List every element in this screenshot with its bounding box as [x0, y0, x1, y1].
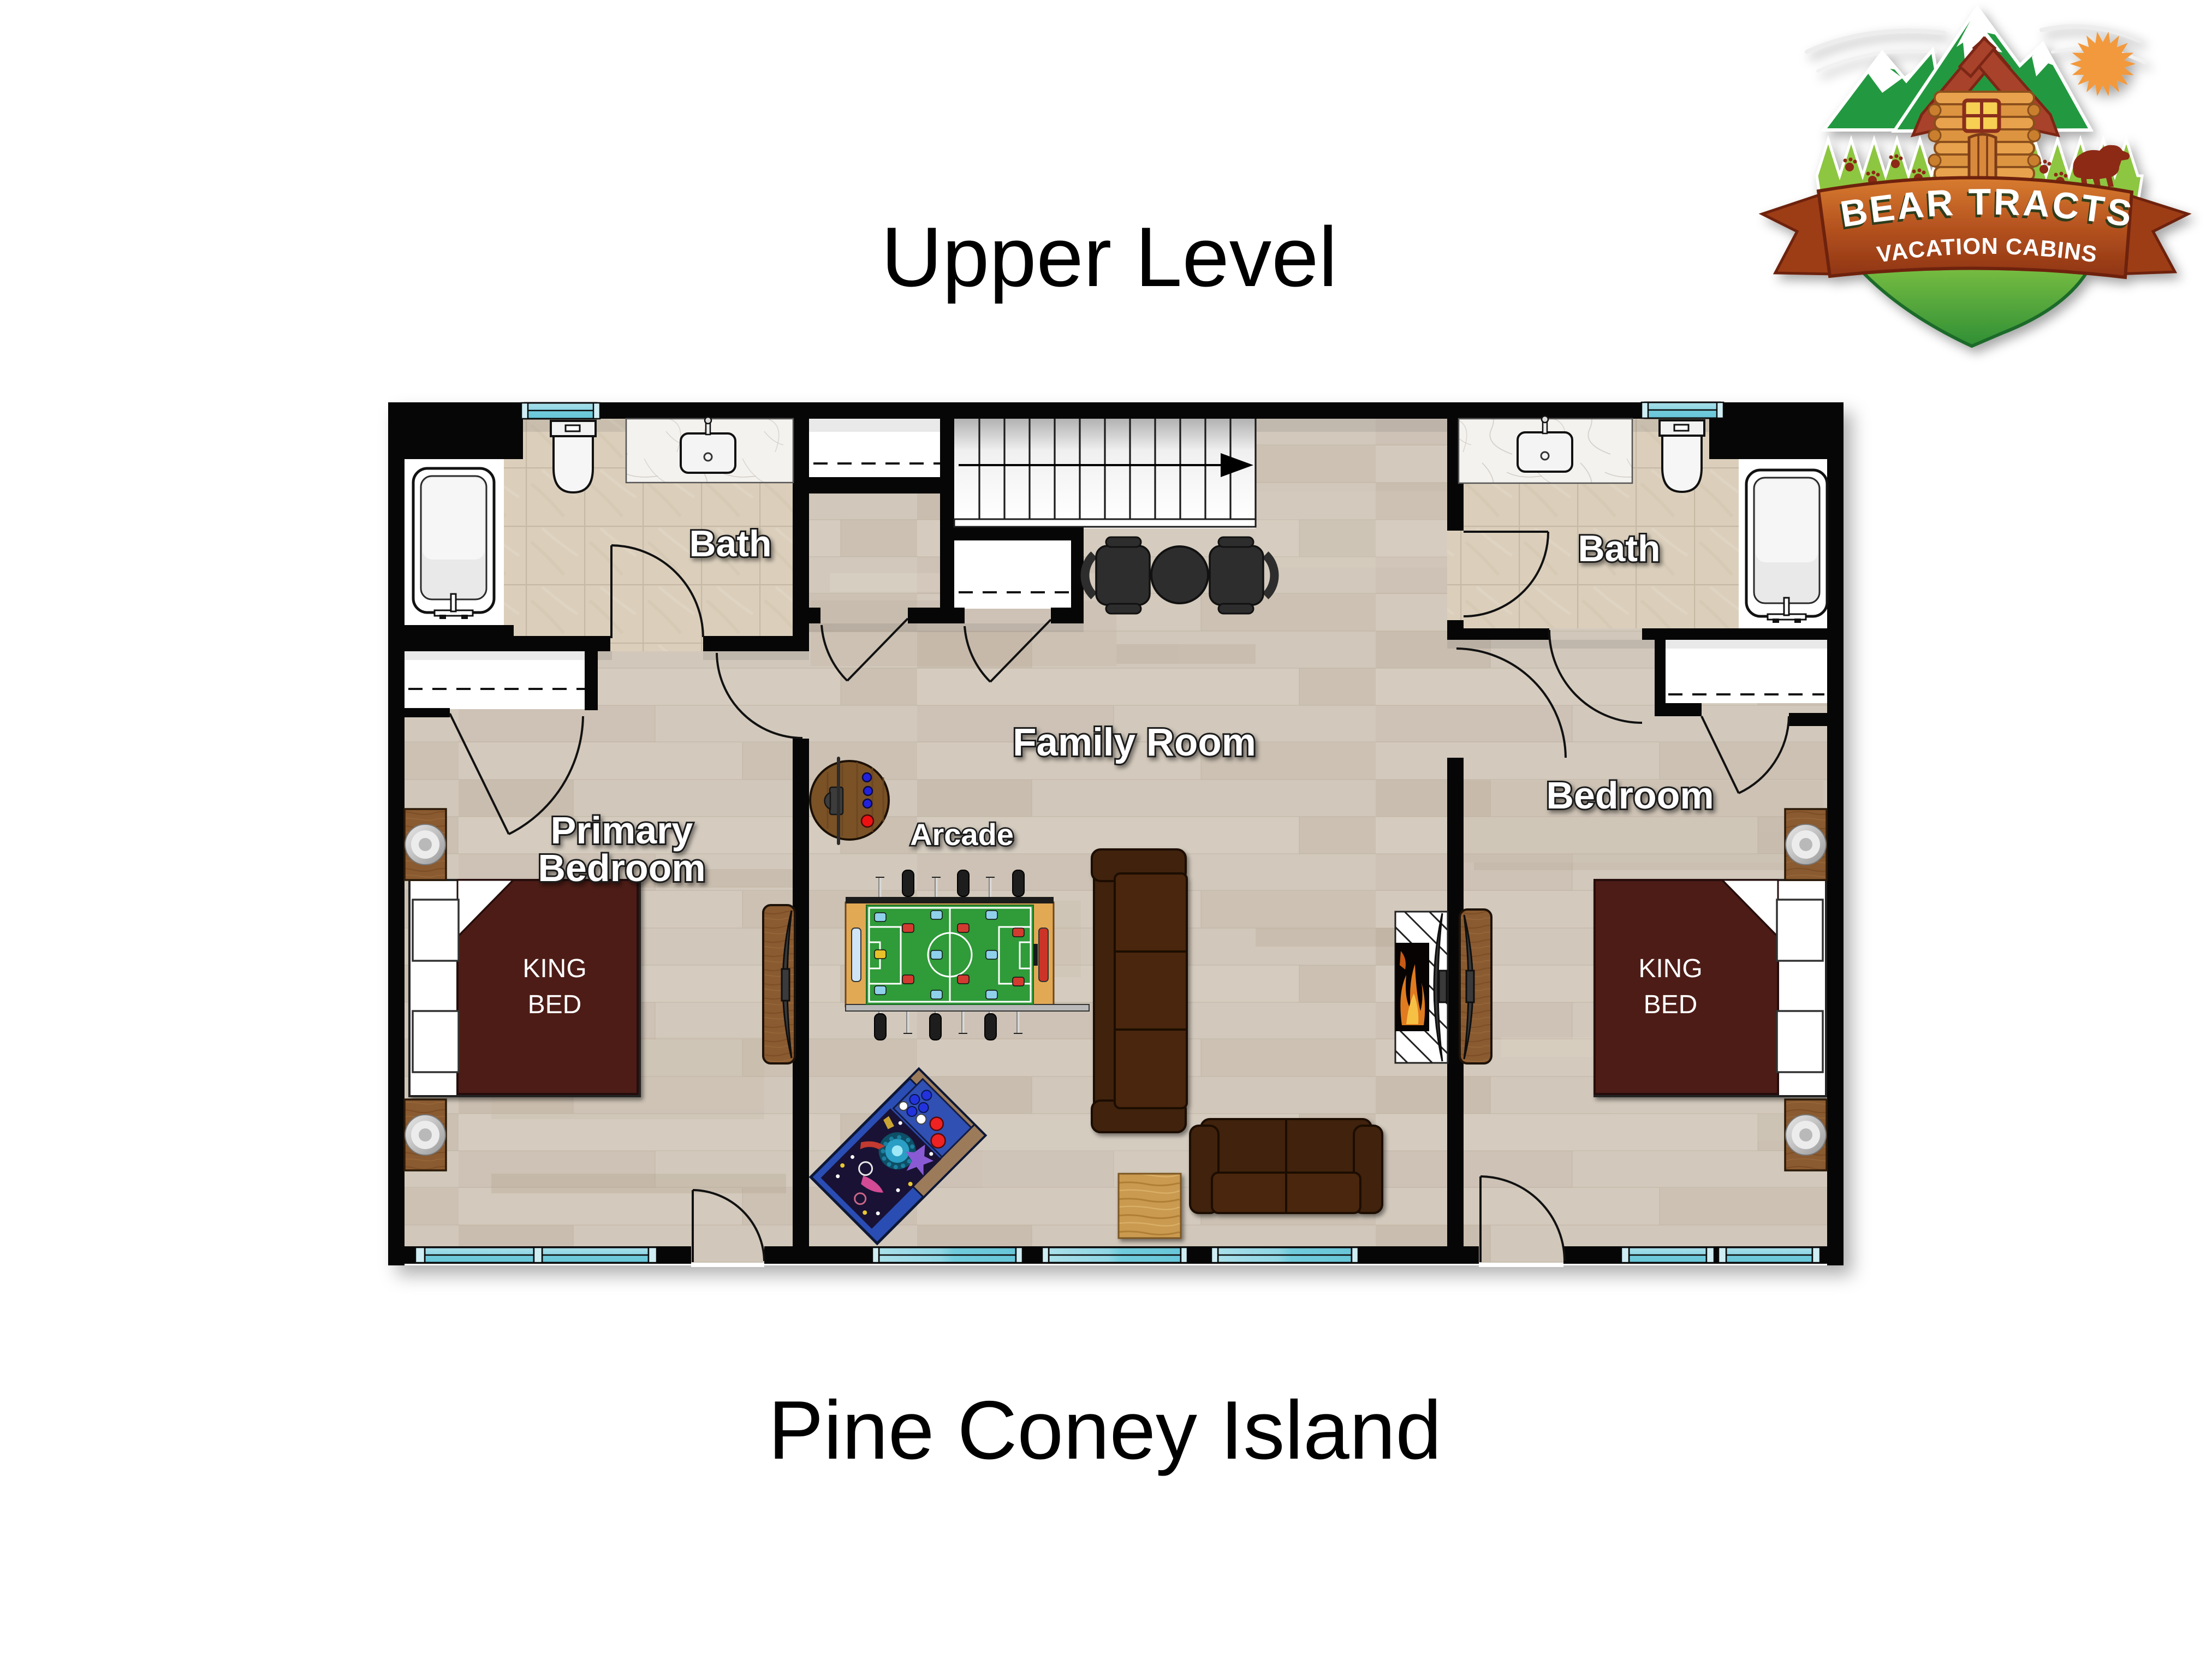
- svg-text:BED: BED: [528, 990, 582, 1019]
- svg-text:Upper Level: Upper Level: [881, 210, 1337, 304]
- svg-text:Bath: Bath: [1578, 528, 1660, 569]
- svg-text:Pine Coney Island: Pine Coney Island: [768, 1384, 1442, 1477]
- svg-text:Family Room: Family Room: [1013, 721, 1256, 764]
- svg-text:KING: KING: [522, 954, 586, 983]
- svg-text:Bedroom: Bedroom: [538, 847, 705, 889]
- svg-text:Bath: Bath: [689, 523, 771, 564]
- svg-text:Primary: Primary: [551, 809, 693, 852]
- svg-text:Arcade: Arcade: [910, 817, 1014, 852]
- svg-text:BED: BED: [1644, 990, 1698, 1019]
- svg-text:KING: KING: [1638, 954, 1702, 983]
- svg-text:Bedroom: Bedroom: [1546, 774, 1714, 817]
